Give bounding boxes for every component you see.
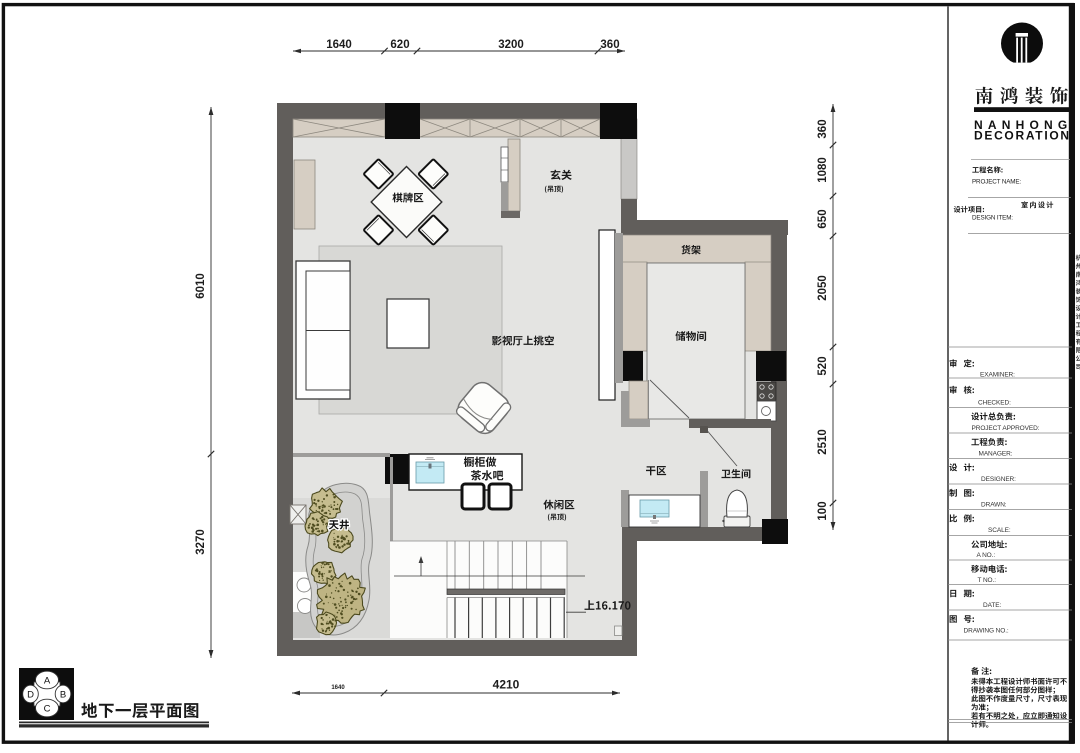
- svg-text:DESIGNER:: DESIGNER:: [981, 476, 1016, 483]
- svg-text:SCALE:: SCALE:: [988, 527, 1011, 534]
- svg-text:PROJECT APPROVED:: PROJECT APPROVED:: [972, 425, 1040, 432]
- svg-text:B: B: [60, 690, 66, 701]
- svg-text:DATE:: DATE:: [983, 602, 1001, 609]
- svg-text:360: 360: [600, 39, 619, 51]
- svg-text:6010: 6010: [195, 273, 207, 299]
- svg-text:100: 100: [817, 501, 829, 520]
- svg-text:1080: 1080: [817, 157, 829, 183]
- svg-text:620: 620: [390, 39, 409, 51]
- svg-text:DESIGN ITEM:: DESIGN ITEM:: [972, 215, 1013, 222]
- svg-text:520: 520: [817, 356, 829, 375]
- svg-text:EXAMINER:: EXAMINER:: [980, 372, 1015, 379]
- svg-text:DRAWN:: DRAWN:: [981, 502, 1007, 509]
- svg-text:3200: 3200: [498, 39, 524, 51]
- svg-text:A: A: [44, 676, 51, 687]
- svg-text:DECORATION: DECORATION: [974, 129, 1071, 143]
- svg-text:4210: 4210: [493, 678, 520, 692]
- svg-text:650: 650: [817, 209, 829, 228]
- svg-text:360: 360: [817, 119, 829, 138]
- svg-text:1640: 1640: [326, 39, 352, 51]
- svg-text:2510: 2510: [817, 429, 829, 455]
- svg-text:MANAGER:: MANAGER:: [979, 451, 1013, 458]
- svg-text:1640: 1640: [331, 685, 345, 691]
- svg-text:A NO.:: A NO.:: [977, 552, 996, 559]
- svg-text:3270: 3270: [195, 529, 207, 555]
- svg-text:CHECKED:: CHECKED:: [978, 400, 1011, 407]
- svg-text:T NO.:: T NO.:: [978, 577, 997, 584]
- svg-text:2050: 2050: [817, 275, 829, 301]
- svg-text:C: C: [44, 704, 51, 715]
- svg-text:PROJECT NAME:: PROJECT NAME:: [972, 179, 1021, 186]
- svg-text:D: D: [27, 690, 34, 701]
- svg-text:DRAWING NO.:: DRAWING NO.:: [964, 628, 1009, 635]
